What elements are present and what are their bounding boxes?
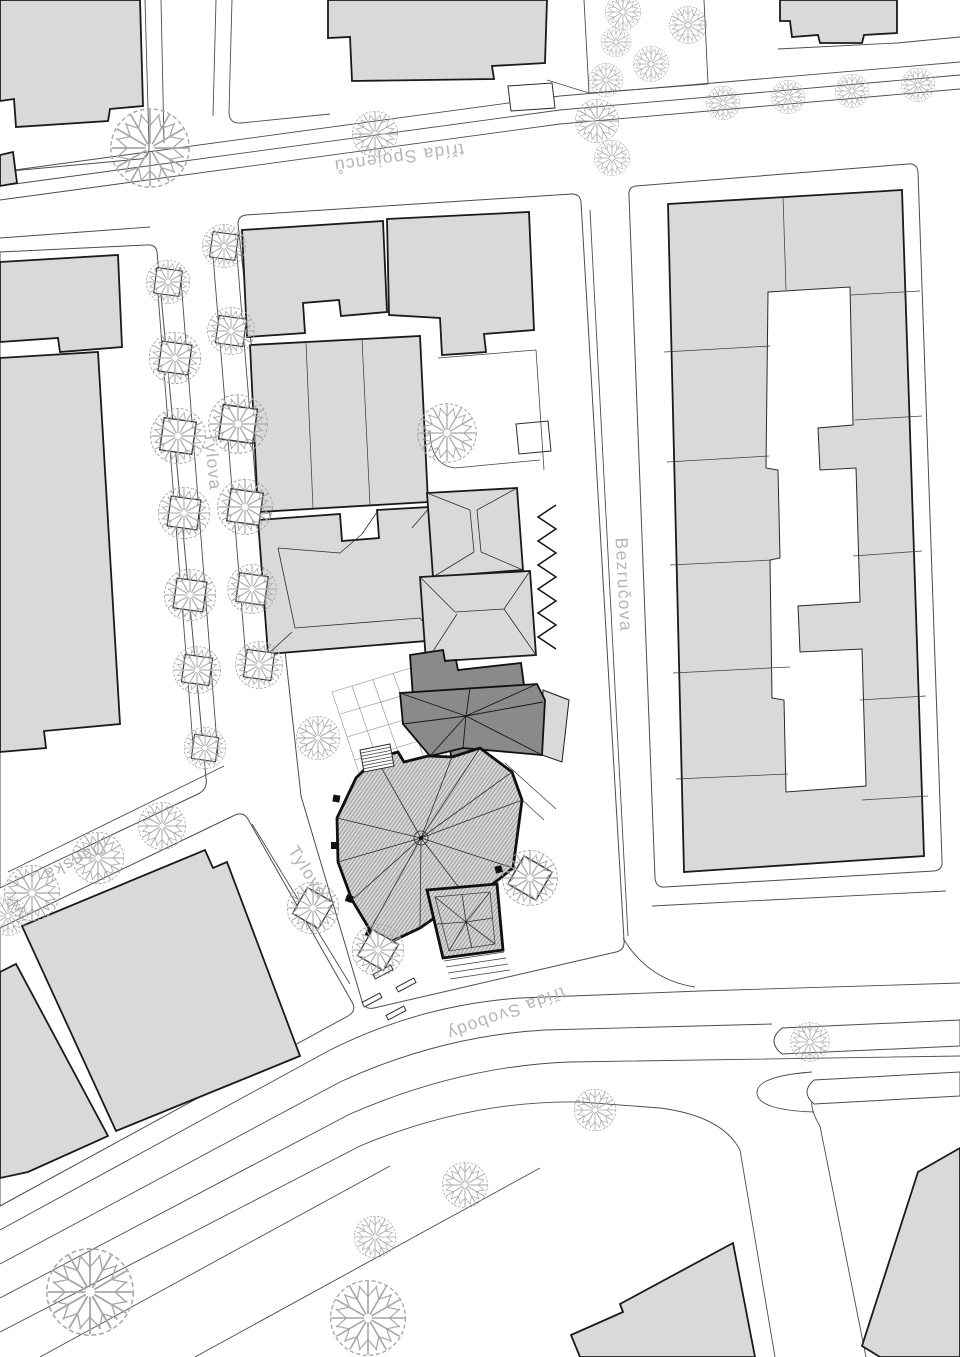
tree-icon [594,140,629,175]
building [250,336,428,512]
building [0,352,120,752]
building [0,152,17,186]
traffic-median [807,1072,960,1104]
small-structure [508,83,555,111]
building [0,255,122,352]
tree-icon [354,1216,395,1257]
street-line [161,0,164,143]
building [328,0,547,81]
tree-icon [835,74,868,107]
tree-icon [633,46,668,81]
tree-icon [670,7,707,44]
street-line [0,227,150,238]
site-plan-canvas: třída Spojenců Tylova Bezručova Dánská T… [0,0,960,1357]
tree-icon [601,27,631,57]
street-line [778,37,960,49]
tree-icon [443,1163,488,1208]
street-line [229,0,330,123]
tree-icon [706,86,739,119]
median-u-turn [757,1072,814,1112]
tree-icon [605,0,640,30]
tree-icon [589,63,622,96]
street-label-spojencu: třída Spojenců [333,139,466,176]
street-line [623,938,695,987]
building [862,1148,960,1357]
tree-icon [47,1249,133,1335]
tree-icon [901,68,934,101]
tree-icon [771,80,804,113]
street-line [812,1098,866,1357]
small-structure [516,421,551,454]
street-line [547,0,708,93]
building [780,0,897,43]
street-line [652,891,946,906]
church-roof-finial-dot [419,836,423,840]
street-label-bezrucova: Bezručova [612,537,637,632]
street-label-svobody: třída Svobody [444,983,568,1045]
east-block-buildings [664,190,928,872]
street-label-tylova-north: Tylova [200,431,226,491]
tree-icon [574,1089,615,1130]
building-hip-roof [420,571,536,662]
street-line [40,1166,390,1357]
tree-icon [331,1281,406,1356]
building [0,0,143,127]
tree-icon [111,109,189,187]
street-line [213,0,216,116]
site-plan-svg: třída Spojenců Tylova Bezručova Dánská T… [0,0,960,1357]
street-line [0,75,960,186]
building [571,1243,755,1357]
